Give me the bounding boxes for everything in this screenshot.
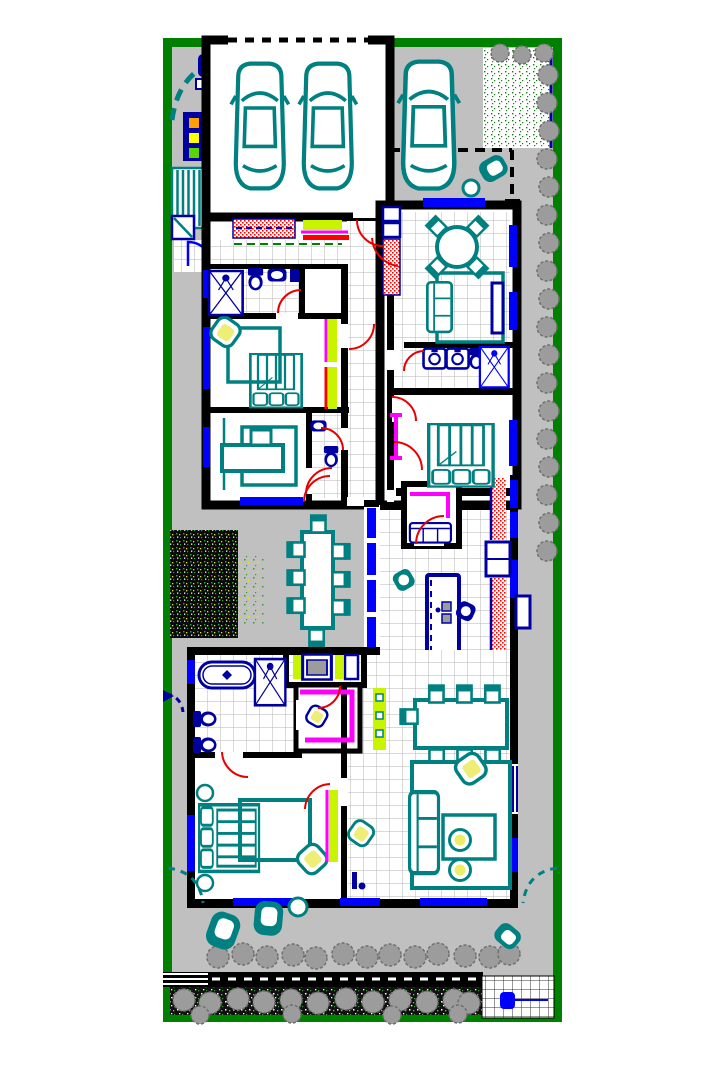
garden-overflow (238, 555, 264, 625)
bath2-basin-2 (447, 348, 469, 368)
door-gap-mbath (215, 752, 243, 758)
shrub-row-lower-bush (227, 988, 249, 1010)
water-valve (500, 992, 515, 1009)
shrub-row-upper-bush (256, 946, 278, 968)
door-gap-mbed (341, 778, 347, 806)
dining-chair-t1 (428, 684, 445, 702)
garden-bed (170, 530, 238, 638)
shrub-row-upper-bush (356, 946, 378, 968)
coat-stand (352, 872, 357, 889)
patio-door-south-3 (420, 898, 487, 906)
window-south-study (240, 497, 303, 505)
shrub-row-upper-bush (232, 943, 254, 965)
hedge-right-row-bush (539, 177, 559, 197)
paver-grid (482, 976, 554, 1018)
floor-plan-page (0, 0, 718, 1072)
shrub-row-edge-bush (449, 1005, 467, 1023)
shrub-row-upper-bush (454, 945, 476, 967)
wc-sink (310, 420, 326, 431)
patio-table (302, 532, 333, 628)
wall-corridor-west-lower (341, 407, 348, 505)
shrub-row-lower-bush (335, 988, 357, 1010)
entry-shelf-red (303, 235, 349, 240)
patio-chair-top (310, 514, 327, 532)
window-east-tv (509, 292, 517, 330)
master-toilet (193, 711, 217, 727)
patio-door-south-2 (340, 898, 380, 906)
outdoor-bench-east (516, 596, 530, 628)
shrub-row-lower-bush (307, 992, 329, 1014)
patio-glazing-stub-top (364, 500, 379, 507)
door-gap-bedroom1 (341, 324, 348, 348)
hall-shelf-box-1 (376, 694, 383, 701)
hedge-right-row-bush (537, 261, 557, 281)
hedge-right-row-bush (538, 65, 558, 85)
hedge-right-row-bush (539, 401, 559, 421)
bath2-shower (480, 347, 509, 387)
hedge-right-row-bush (539, 457, 559, 477)
hedge-right-row-bush (537, 373, 557, 393)
hedge-right-row-bush (537, 317, 557, 337)
window-kitchen-2 (510, 512, 518, 538)
tv-unit (492, 283, 503, 333)
door-gap-bath2 (387, 350, 400, 370)
bath1-toilet (248, 268, 263, 290)
window-east-dining (509, 225, 517, 267)
bath1-shower (209, 271, 243, 315)
shrub-row-lower-bush (253, 991, 275, 1013)
island-sink-1 (442, 602, 451, 611)
patio-glazing-pane-3 (367, 580, 376, 612)
living-pouf-1 (450, 830, 471, 851)
hedge-right-row-bush (539, 513, 559, 533)
hedge-top-row-bush (535, 44, 553, 62)
shrub-row-upper-bush (404, 946, 426, 968)
closet-door-gap (296, 700, 302, 730)
door-gap-bath1 (276, 313, 298, 319)
study-desk (222, 445, 283, 471)
bedroom1-wardrobe-lime-2 (328, 367, 337, 409)
car-garage-right (299, 64, 357, 189)
hall-shelf-box-2 (376, 712, 383, 719)
window-west-tub (187, 660, 195, 684)
bed2 (429, 424, 493, 486)
hedge-right-row-bush (539, 345, 559, 365)
round-table (437, 227, 477, 267)
dining-chair-t2 (456, 684, 473, 702)
wall-family-north-east (457, 502, 517, 510)
dining-table (415, 700, 507, 748)
shrub-row-lower-bush (416, 991, 438, 1013)
car-garage-left (231, 64, 289, 189)
patio-chair-bottom (308, 630, 325, 648)
wall-entry-south (206, 264, 347, 269)
gate-light-orange (189, 118, 199, 128)
living-pouf-2 (450, 860, 471, 881)
shrub-row-upper-bush (427, 943, 449, 965)
patio-glazing-pane-1 (367, 508, 376, 538)
living-sofa (410, 792, 439, 873)
door-gap-garage-entry (353, 209, 377, 218)
bath1-sink (268, 269, 287, 282)
shrub-row-edge-bush (191, 1006, 209, 1024)
bathtub (199, 662, 255, 688)
wc-toilet (324, 446, 338, 467)
garage-room (206, 40, 390, 217)
entry-cabinet-hatch (233, 219, 295, 238)
dining-chair-left (399, 708, 417, 725)
coat-stand-dot (359, 883, 366, 890)
fence-band (163, 972, 483, 987)
window-west-bedroom1 (203, 327, 210, 389)
hedge-top-row (491, 44, 553, 64)
master-wardrobe-lime (329, 790, 338, 862)
hedge-right-row-bush (537, 149, 557, 169)
yard-chair-left-2 (253, 900, 284, 937)
car-driveway (398, 62, 459, 189)
window-west-study (203, 427, 210, 467)
bath1-cabinet (290, 269, 299, 282)
floor-plan (0, 0, 718, 1072)
study-monitor (251, 430, 271, 445)
entry-shelf-lime (303, 220, 342, 230)
master-shower (255, 659, 285, 705)
shrub-row-upper-bush (305, 947, 327, 969)
wall-bath2-bed2 (392, 388, 517, 395)
window-kitchen-1 (510, 480, 518, 508)
island-faucet (436, 608, 441, 613)
gate-light-yellow (189, 133, 199, 143)
hedge-top-row-bush (491, 44, 509, 62)
hedge-right-row-bush (537, 429, 557, 449)
laundry-washer (303, 655, 332, 680)
window-east-bed2 (509, 420, 517, 466)
shrub-row-upper-bush (379, 944, 401, 966)
pantry-box-2 (383, 223, 400, 237)
shrub-row-upper-bush (332, 943, 354, 965)
hedge-right-row-bush (537, 93, 557, 113)
entry-door-north (423, 198, 485, 207)
hedge-right-row-bush (537, 541, 557, 561)
shrub-row-upper-bush (282, 944, 304, 966)
hedge-right-row-bush (539, 289, 559, 309)
hedge-right-row-bush (539, 233, 559, 253)
hedge-right-row-bush (537, 205, 557, 225)
tv-room-sofa (427, 282, 451, 332)
hedge-top-row-bush (513, 46, 531, 64)
hedge-right-row-bush (539, 121, 559, 141)
hall-shelf-box-3 (376, 730, 383, 737)
patio-glazing-pane-2 (367, 543, 376, 575)
shrub-row-edge-bush (383, 1006, 401, 1024)
pantry-box-1 (383, 207, 400, 221)
laundry-lime-2 (335, 655, 343, 679)
nightstand-north (197, 785, 213, 801)
gate-light-green (189, 148, 199, 158)
patio-chair-right-2 (333, 571, 351, 588)
shrub-row-lower-bush (173, 989, 195, 1011)
shrub-row-lower-bush (362, 991, 384, 1013)
patio-chair-left-2 (286, 569, 304, 586)
master-bidet (193, 737, 217, 753)
bedroom1-wardrobe-lime-1 (328, 319, 337, 362)
patio-chair-left-1 (286, 541, 304, 558)
scooter-wheel (463, 180, 479, 196)
patio-chair-right-1 (333, 543, 351, 560)
patio-chair-right-3 (333, 599, 351, 616)
hedge-right-row-bush (537, 485, 557, 505)
kitchen-counter-south (491, 578, 506, 656)
wall-laundry-east (361, 650, 367, 688)
patio-glazing-pane-4 (367, 617, 376, 650)
plan-root (163, 33, 562, 1024)
shrub-row-edge-bush (283, 1005, 301, 1023)
yard-side-table (289, 898, 307, 916)
dining-chair-t3 (484, 684, 501, 702)
bath2-basin-1 (424, 348, 446, 368)
patio-chair-left-3 (286, 597, 304, 614)
island-sink-2 (442, 614, 451, 623)
pantry-counter-hatch (383, 239, 400, 295)
window-west-mbed (187, 815, 195, 871)
laundry-cabinet (345, 655, 358, 679)
laundry-lime-1 (293, 655, 301, 679)
wall-mbath-south (190, 752, 302, 758)
wall-bath1-east (299, 264, 305, 319)
